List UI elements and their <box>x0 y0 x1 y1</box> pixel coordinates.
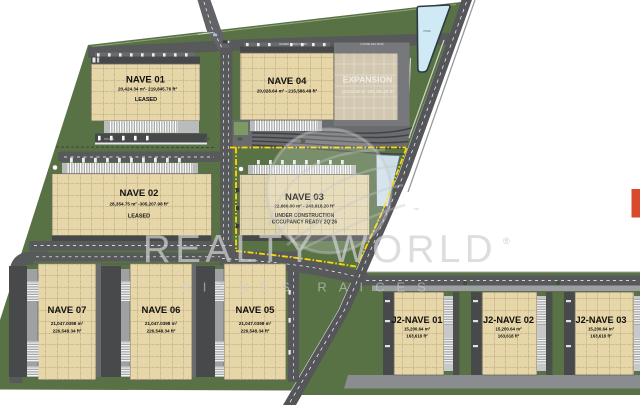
svg-text:15,200.64 m²: 15,200.64 m² <box>588 327 615 332</box>
svg-text:13,932.49 m²-150,192.38 ft²: 13,932.49 m²-150,192.38 ft² <box>341 89 394 94</box>
svg-text:LEASED: LEASED <box>128 214 150 220</box>
svg-text:NAVE 04: NAVE 04 <box>268 76 308 87</box>
svg-text:163,618 ft²: 163,618 ft² <box>590 334 612 339</box>
svg-text:®: ® <box>503 236 510 246</box>
svg-text:NAVE 07: NAVE 07 <box>48 305 87 316</box>
svg-text:NAVE 01: NAVE 01 <box>126 75 166 86</box>
svg-text:J2-NAVE 01: J2-NAVE 01 <box>392 315 443 325</box>
svg-text:226,548.34 ft²: 226,548.34 ft² <box>147 329 176 334</box>
svg-text:TRUCKS: TRUCKS <box>104 138 114 141</box>
svg-text:NAVE 06: NAVE 06 <box>142 305 181 316</box>
svg-text:SHARED TRUCK COURT: SHARED TRUCK COURT <box>279 43 307 46</box>
svg-text:15,200.64 m²: 15,200.64 m² <box>404 327 431 332</box>
svg-text:FUTURE RAIL SPUR: FUTURE RAIL SPUR <box>361 43 384 46</box>
svg-text:163,618 ft²: 163,618 ft² <box>406 334 428 339</box>
svg-text:J2-NAVE 03: J2-NAVE 03 <box>576 315 627 325</box>
svg-text:21,047.0398 m²: 21,047.0398 m² <box>145 321 178 326</box>
svg-text:163,618 ft²: 163,618 ft² <box>498 334 520 339</box>
svg-text:21,047.0398 m²: 21,047.0398 m² <box>239 321 272 326</box>
svg-text:226,548.34 ft²: 226,548.34 ft² <box>53 329 82 334</box>
svg-text:EXPANSION: EXPANSION <box>343 75 392 85</box>
svg-text:28,354.75 m² -305,207.98 ft²: 28,354.75 m² -305,207.98 ft² <box>110 202 169 207</box>
svg-text:15,200.64 m²: 15,200.64 m² <box>495 327 522 332</box>
svg-text:NAVE 05: NAVE 05 <box>236 305 276 316</box>
svg-text:21,047.0398 m²: 21,047.0398 m² <box>51 321 84 326</box>
svg-text:226,548.34 ft²: 226,548.34 ft² <box>241 329 270 334</box>
svg-text:POND: POND <box>424 30 431 33</box>
svg-text:™: ™ <box>413 207 419 214</box>
svg-text:J2-NAVE 02: J2-NAVE 02 <box>483 315 534 325</box>
svg-text:REALTY WORLD: REALTY WORLD <box>143 228 497 271</box>
svg-text:LEASED: LEASED <box>135 97 157 103</box>
svg-text:20,424.34 m²- 219,845.76 ft²: 20,424.34 m²- 219,845.76 ft² <box>118 87 177 92</box>
svg-text:NAVE 02: NAVE 02 <box>120 188 159 199</box>
svg-text:20,028.64 m² - 215,586.48 ft²: 20,028.64 m² - 215,586.48 ft² <box>257 89 318 94</box>
svg-text:BIENES RAICES: BIENES RAICES <box>182 280 438 295</box>
